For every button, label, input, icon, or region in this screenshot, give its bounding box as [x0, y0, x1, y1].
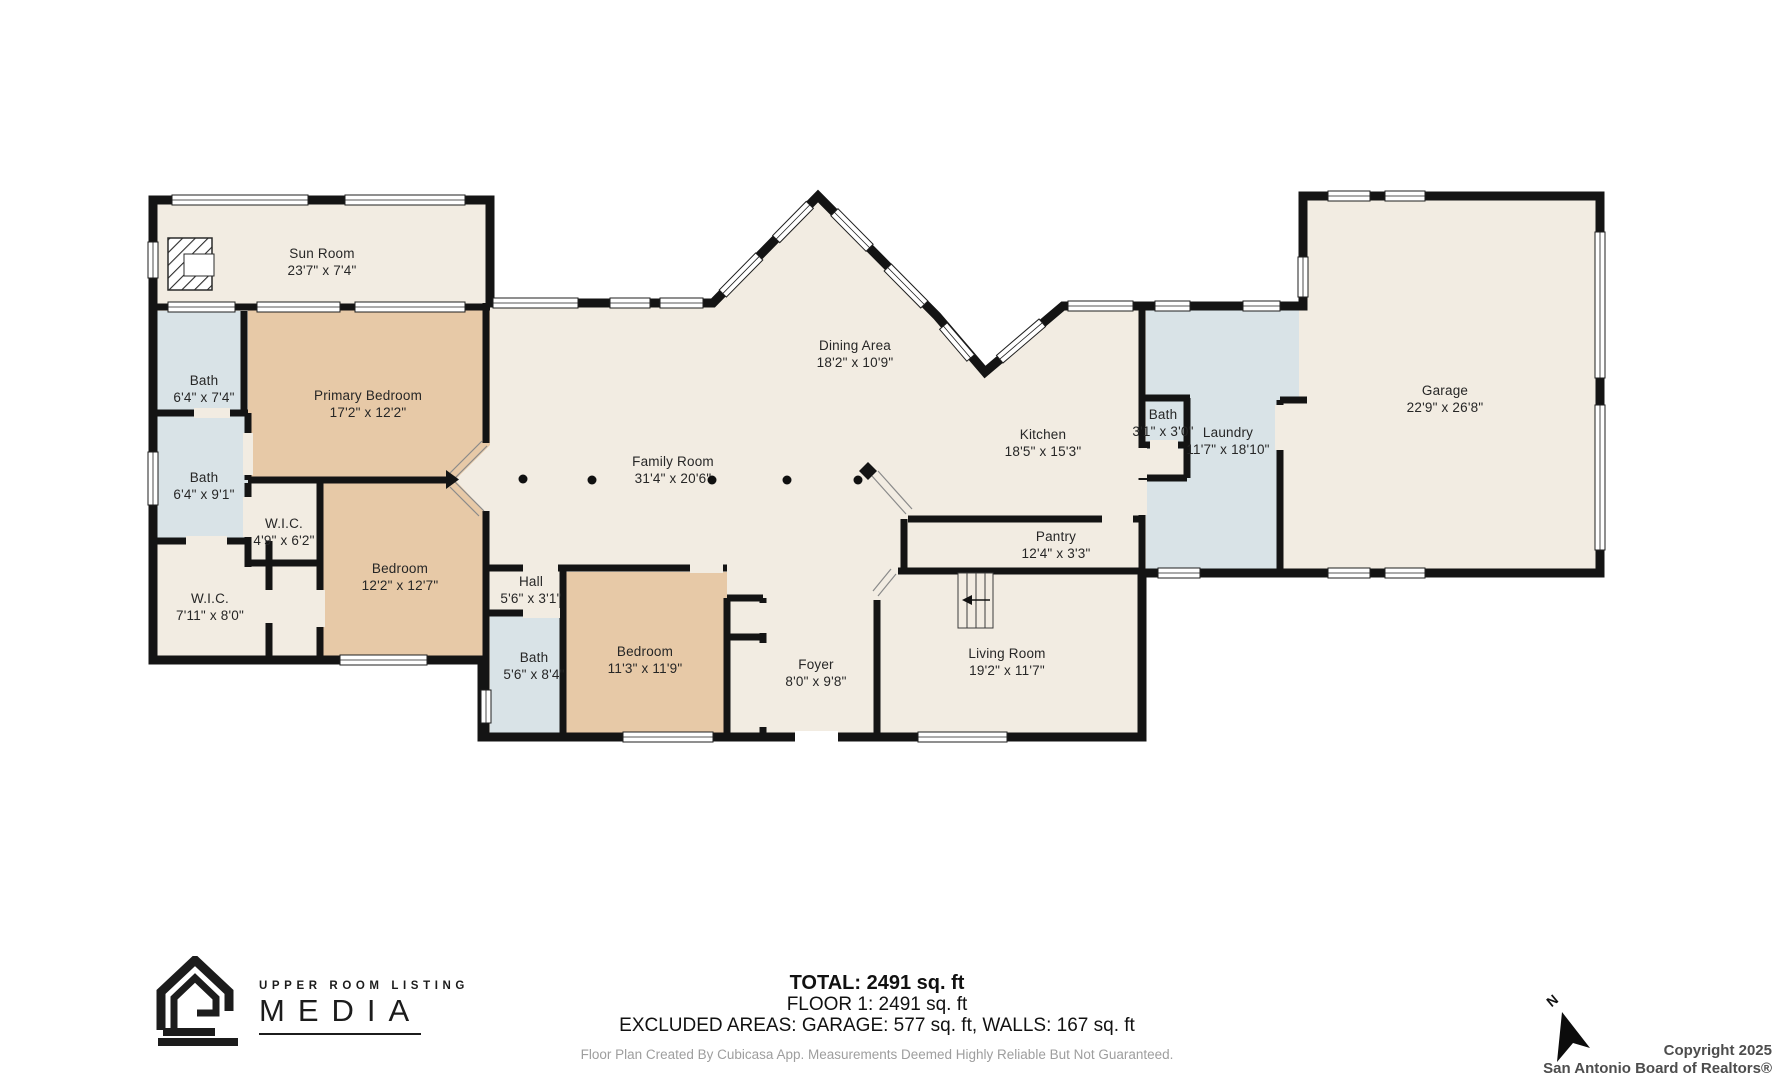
room-label-bedroom-2: Bedroom 11'3" x 11'9" — [608, 643, 683, 677]
laundry-closet-area — [1146, 449, 1187, 478]
logo-rule — [259, 1033, 421, 1035]
upper-room-listing-media-logo: UPPER ROOM LISTING MEDIA — [155, 956, 445, 1056]
total-area-text: TOTAL: 2491 sq. ft — [581, 972, 1174, 994]
room-label-kitchen: Kitchen 18'5" x 15'3" — [1005, 426, 1082, 460]
copyright-line2: San Antonio Board of Realtors® — [1543, 1060, 1772, 1078]
house-logo-icon — [155, 956, 245, 1051]
room-label-hall: Hall 5'6" x 3'1" — [500, 573, 561, 607]
fireplace-icon — [168, 238, 214, 290]
room-label-bath-2: Bath 6'4" x 9'1" — [173, 469, 234, 503]
room-label-family-room: Family Room 31'4" x 20'6" — [632, 453, 714, 487]
copyright-notice: Copyright 2025 San Antonio Board of Real… — [1543, 1042, 1772, 1078]
north-label: N — [1543, 991, 1561, 1010]
copyright-line1: Copyright 2025 — [1543, 1042, 1772, 1060]
staircase — [958, 573, 993, 628]
excluded-areas-text: EXCLUDED AREAS: GARAGE: 577 sq. ft, WALL… — [581, 1015, 1174, 1036]
room-label-wic-2: W.I.C. 7'11" x 8'0" — [176, 590, 244, 624]
logo-text-line2: MEDIA — [259, 993, 469, 1029]
floor-area-text: FLOOR 1: 2491 sq. ft — [581, 994, 1174, 1015]
floor-plan-page: { "rooms": { "sun_room": {"name": "Sun R… — [0, 0, 1774, 1080]
logo-text-line1: UPPER ROOM LISTING — [259, 980, 469, 992]
room-label-wic-1: W.I.C. 4'9" x 6'2" — [253, 515, 314, 549]
room-label-laundry: Laundry 11'7" x 18'10" — [1186, 424, 1269, 458]
room-label-bedroom-1: Bedroom 12'2" x 12'7" — [362, 560, 439, 594]
room-label-bath-1: Bath 6'4" x 7'4" — [173, 372, 234, 406]
room-label-living-room: Living Room 19'2" x 11'7" — [968, 645, 1045, 679]
room-label-primary-bedroom: Primary Bedroom 17'2" x 12'2" — [314, 387, 422, 421]
room-label-bath-4: Bath 3'1" x 3'0" — [1132, 406, 1193, 440]
room-label-foyer: Foyer 8'0" x 9'8" — [785, 656, 846, 690]
room-label-sun-room: Sun Room 23'7" x 7'4" — [288, 245, 357, 279]
room-label-bath-3: Bath 5'6" x 8'4" — [503, 649, 564, 683]
area-summary: TOTAL: 2491 sq. ft FLOOR 1: 2491 sq. ft … — [581, 972, 1174, 1063]
disclaimer-text: Floor Plan Created By Cubicasa App. Meas… — [581, 1047, 1174, 1063]
floor-plan-drawing — [0, 0, 1774, 900]
room-label-dining-area: Dining Area 18'2" x 10'9" — [817, 337, 894, 371]
room-label-pantry: Pantry 12'4" x 3'3" — [1022, 528, 1091, 562]
room-label-garage: Garage 22'9" x 26'8" — [1407, 382, 1484, 416]
